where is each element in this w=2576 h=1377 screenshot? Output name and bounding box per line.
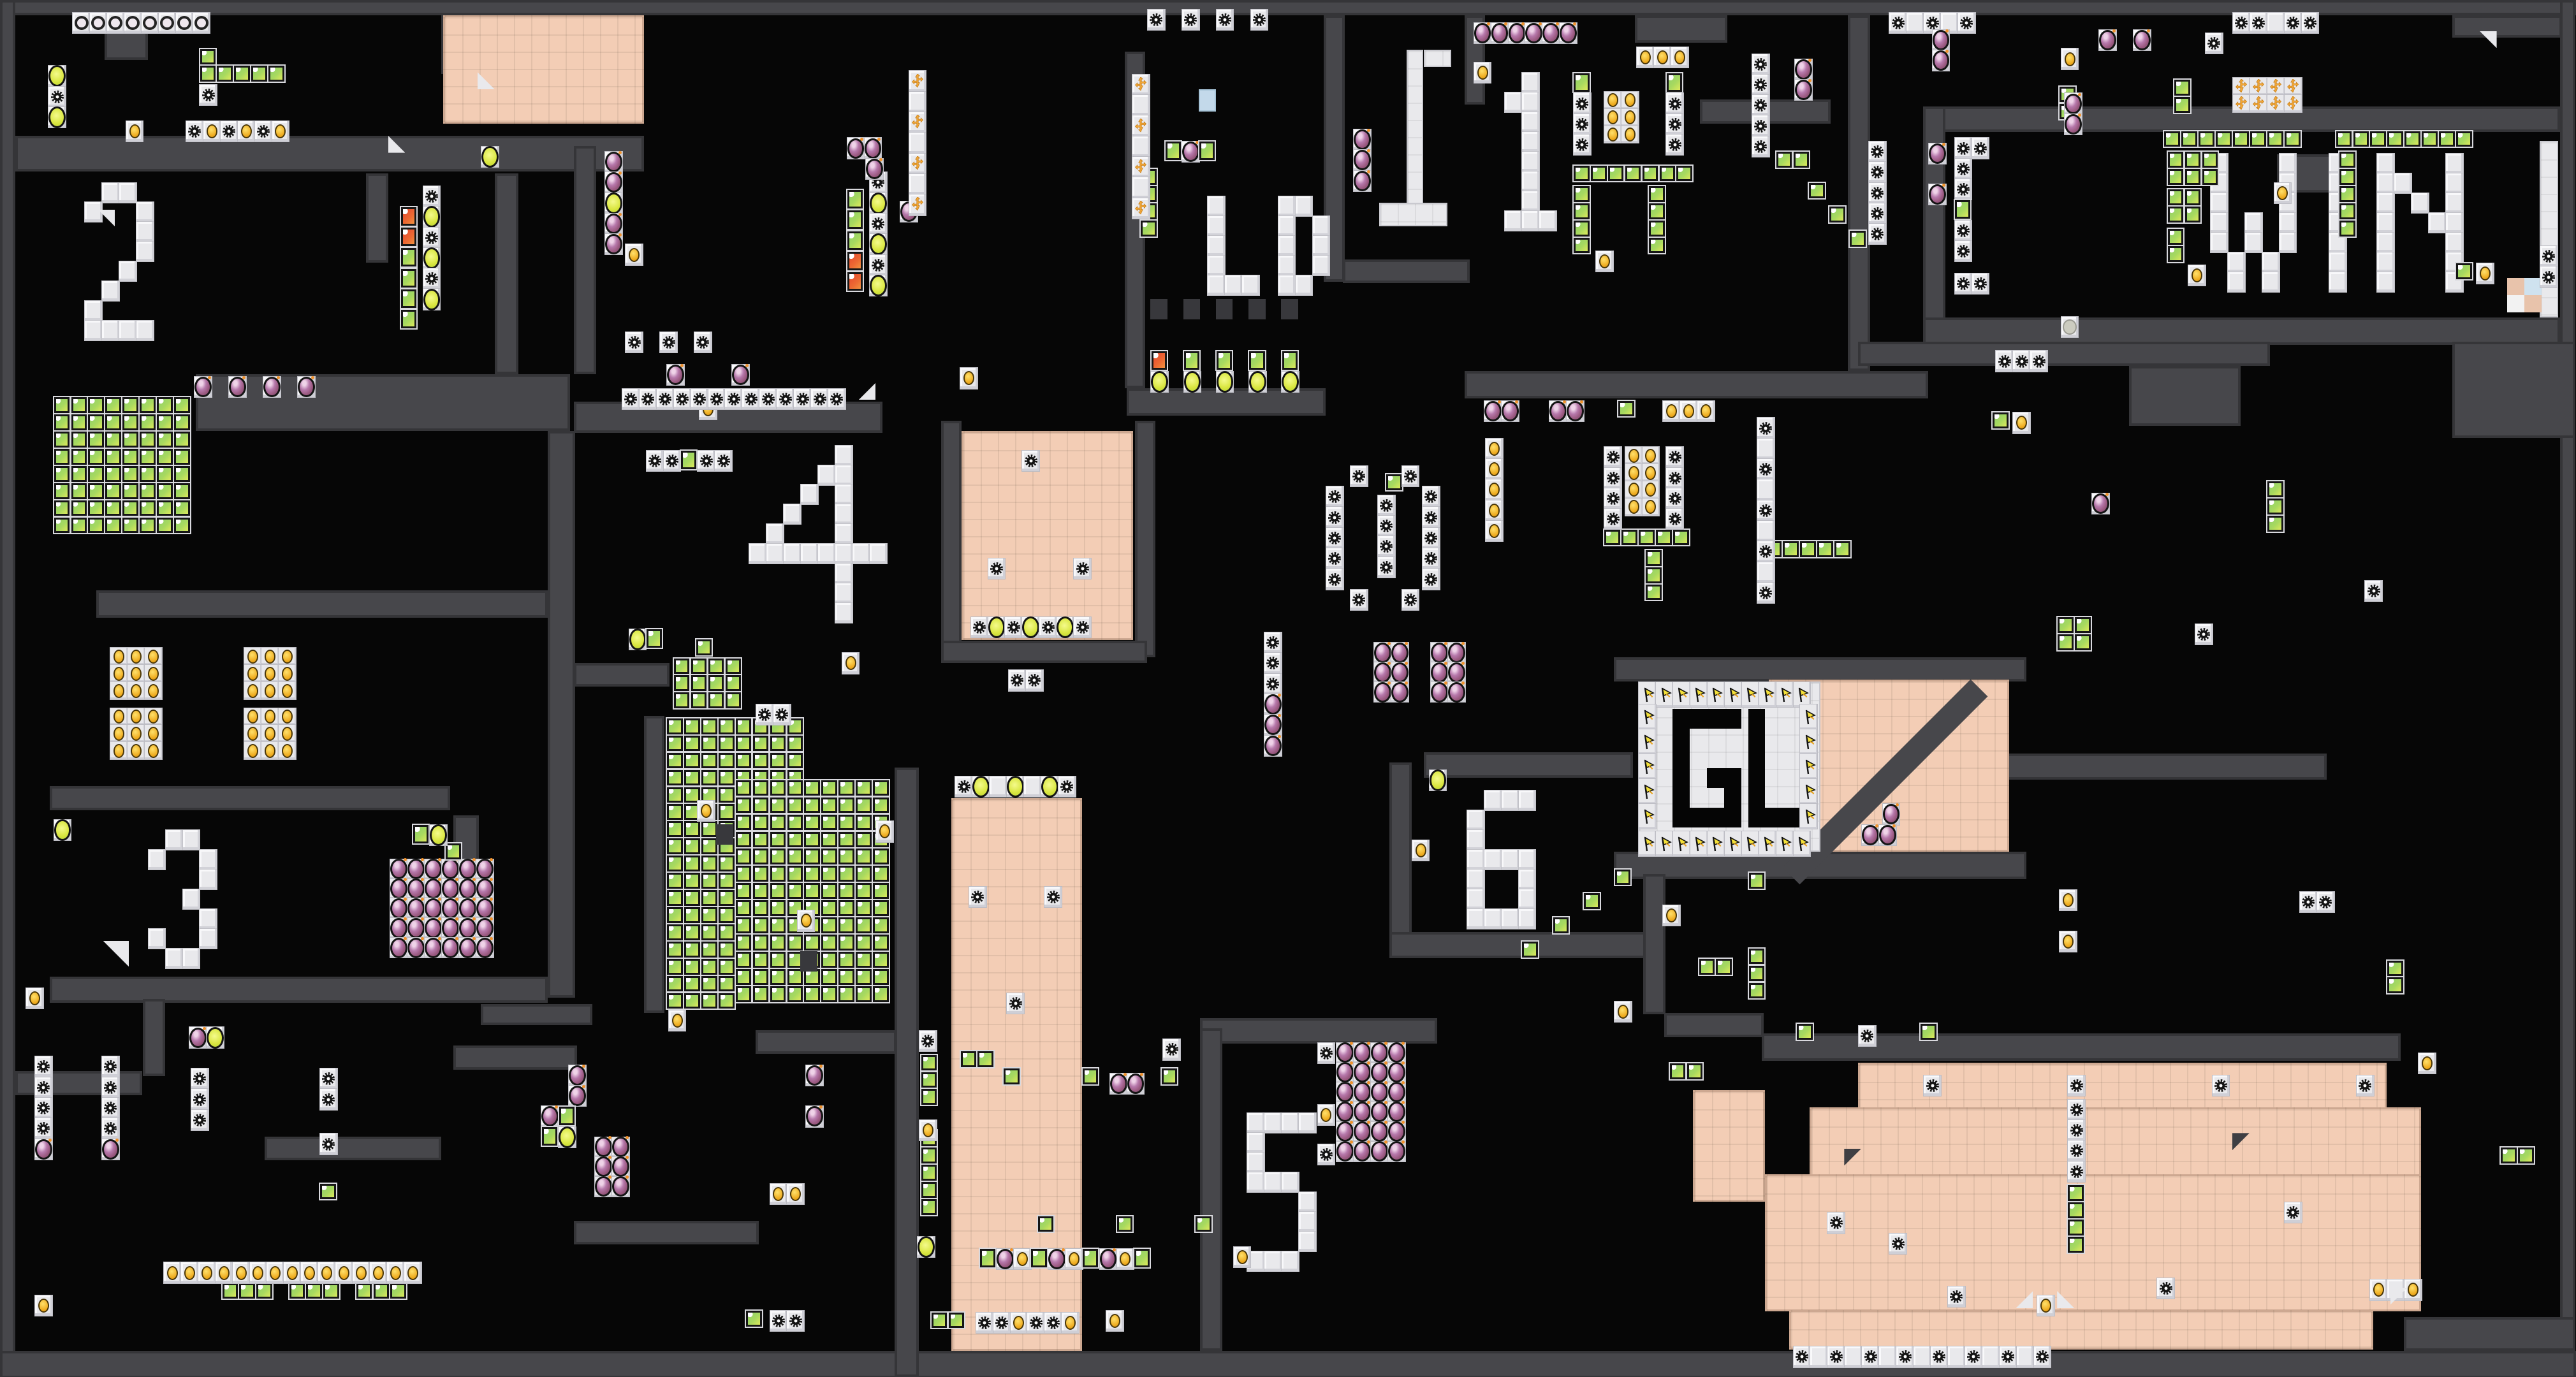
green-block <box>753 866 769 882</box>
saw-tile <box>1757 541 1775 562</box>
saw-icon <box>1891 16 1905 30</box>
green-block <box>54 500 70 516</box>
green-block <box>787 832 803 848</box>
glyph-L-tile <box>1207 235 1226 256</box>
coin-tile <box>237 120 256 142</box>
berry-icon <box>476 859 494 879</box>
berry-icon <box>1388 1141 1405 1162</box>
green-block <box>157 518 173 534</box>
coin-icon <box>773 1187 784 1201</box>
saw-icon <box>624 392 638 406</box>
green-block <box>306 1283 322 1299</box>
green-block <box>708 675 724 691</box>
peach-terrain <box>1693 1090 1765 1202</box>
glyph-4-tile <box>835 504 853 525</box>
green-block <box>753 969 769 985</box>
coin-icon <box>1013 1316 1024 1330</box>
big-coin-icon <box>870 233 887 255</box>
green-block <box>200 49 216 65</box>
green-block <box>804 780 820 796</box>
bigcoin-tile <box>869 193 888 214</box>
coin-icon <box>247 744 258 758</box>
glyph-N-tile <box>2376 193 2395 214</box>
saw-icon <box>103 1081 117 1095</box>
berry-icon <box>459 918 476 938</box>
green-block <box>1141 221 1157 237</box>
green-block <box>667 736 683 752</box>
coin-tile <box>842 652 860 674</box>
green-block <box>667 942 683 958</box>
berry-tile <box>458 937 477 958</box>
flag-tile <box>1638 754 1657 780</box>
saw-tile <box>1889 1233 1907 1255</box>
block-green <box>413 825 428 843</box>
berry-icon <box>390 898 407 919</box>
coin-tile <box>244 708 262 726</box>
berry-tile <box>390 917 408 938</box>
berry-tile <box>458 878 477 900</box>
saw-icon <box>1668 450 1682 464</box>
glyph-D-tile <box>1278 255 1296 276</box>
saw-tile <box>1326 486 1344 507</box>
glyph-N-tile <box>2445 173 2464 194</box>
saw-icon <box>1183 13 1197 27</box>
green-block <box>1687 1063 1703 1079</box>
berry-icon <box>2133 30 2151 50</box>
flag-tile <box>1793 831 1811 857</box>
block-green <box>1667 73 1682 92</box>
berry-icon <box>1264 736 1282 756</box>
berry-icon <box>806 1106 823 1126</box>
saw-tile <box>2030 350 2048 372</box>
saw-tile <box>1025 669 1044 691</box>
arrow-tile <box>1132 74 1150 96</box>
green-block <box>684 718 700 734</box>
block-red <box>1152 351 1167 370</box>
saw-icon <box>1870 165 1884 179</box>
berry-tile <box>476 878 494 900</box>
berry-tile <box>1928 143 1947 164</box>
wall-segment <box>481 1004 592 1024</box>
saw-icon <box>1575 138 1589 152</box>
saw-icon <box>1668 492 1682 506</box>
berry-icon <box>407 878 425 899</box>
saw-icon <box>871 217 885 231</box>
saw-icon <box>36 1121 50 1135</box>
wall-segment <box>50 786 450 810</box>
green-block <box>804 883 820 899</box>
berry-icon <box>1502 401 1519 421</box>
saw-tile <box>955 776 973 798</box>
coin-icon <box>148 684 159 698</box>
berry-tile <box>441 859 460 880</box>
coin-icon <box>131 667 142 681</box>
green-block <box>1817 541 1833 557</box>
berry-icon <box>1374 643 1391 663</box>
saw-tile <box>2284 1202 2302 1223</box>
coin-icon <box>2192 268 2202 282</box>
coin-tile <box>144 708 163 726</box>
saw-tile <box>1350 465 1368 487</box>
green-block <box>1386 474 1402 490</box>
green-block <box>736 969 752 985</box>
green-block <box>174 449 190 465</box>
green-block <box>140 518 156 534</box>
saw-tile <box>2356 1075 2375 1096</box>
saw-tile <box>694 331 712 353</box>
green-block <box>753 883 769 899</box>
coin-tile <box>203 120 221 142</box>
berry-icon <box>1431 662 1448 683</box>
green-block <box>961 1051 977 1067</box>
berry-tile <box>1387 1141 1406 1162</box>
saw-icon <box>1668 117 1682 131</box>
saw-tile <box>663 450 682 472</box>
big-coin-icon <box>481 146 499 168</box>
saw-tile <box>773 704 791 725</box>
coin-icon <box>275 124 286 138</box>
glyph-D-tile <box>1278 275 1296 296</box>
coin-tile <box>2012 412 2031 433</box>
berry-icon <box>541 1106 559 1126</box>
green-block <box>1794 152 1810 168</box>
glyph-2-tile <box>119 320 137 341</box>
berry-icon <box>1542 23 1560 43</box>
green-block <box>2058 617 2074 633</box>
coin-icon <box>2480 266 2491 280</box>
glyph-2-tile <box>119 182 137 203</box>
coin-tile <box>278 708 296 726</box>
berry-icon <box>1391 643 1409 663</box>
green-block <box>726 659 742 674</box>
bigcoin-tile <box>1041 776 1059 798</box>
arrow-cross-icon <box>910 156 925 171</box>
glyph-L-tile <box>1748 729 1766 748</box>
berry-icon <box>1883 804 1900 824</box>
berry-tile <box>1373 642 1392 663</box>
berry-tile <box>407 937 425 958</box>
green-block <box>719 718 735 734</box>
slope-wedge <box>2480 31 2497 48</box>
saw-icon <box>1252 13 1266 27</box>
berry-tile <box>1336 1042 1354 1063</box>
saw-icon <box>1007 620 1021 634</box>
green-block <box>787 798 803 813</box>
berry-tile <box>2064 113 2082 135</box>
coin-tile <box>1621 108 1639 127</box>
big-coin-icon <box>972 776 990 798</box>
green-block <box>821 986 837 1002</box>
coin-tile <box>369 1262 388 1283</box>
berry-tile <box>666 364 685 386</box>
flag-tile <box>1776 681 1794 708</box>
glyph-D-tile <box>1278 215 1296 237</box>
ring-tile <box>193 12 211 34</box>
green-block <box>753 753 769 769</box>
wall-segment <box>1858 342 2270 366</box>
glyph-6-tile <box>1484 908 1502 929</box>
saw-icon <box>1328 572 1342 586</box>
green-block <box>1800 541 1816 557</box>
saw-tile <box>646 450 664 472</box>
green-block <box>1749 949 1765 965</box>
berry-icon <box>1354 150 1371 170</box>
green-block <box>701 718 717 734</box>
berry-tile <box>1525 22 1543 44</box>
saw-tile <box>1665 113 1684 135</box>
berry-tile <box>424 859 443 880</box>
berry-icon <box>459 938 476 958</box>
green-block <box>787 736 803 752</box>
green-block <box>753 900 769 916</box>
glyph-5-tile <box>1247 1132 1265 1153</box>
green-block <box>838 780 854 796</box>
green-block <box>838 849 854 864</box>
saw-icon <box>641 392 655 406</box>
flag-tile <box>1707 681 1725 708</box>
green-block <box>1117 1216 1133 1232</box>
saw-icon <box>699 454 714 468</box>
glyph-6-tile <box>1501 849 1519 870</box>
green-block <box>719 736 735 752</box>
glyph-5-tile <box>1264 1112 1282 1133</box>
coin-icon <box>672 1014 683 1028</box>
saw-tile <box>2033 1346 2052 1367</box>
coin-icon <box>1628 483 1639 497</box>
block-green <box>1955 200 1970 219</box>
wall-segment <box>50 977 548 1002</box>
flag-tile <box>1759 681 1777 708</box>
berry-tile <box>1447 662 1466 683</box>
green-block <box>1670 1063 1686 1079</box>
saw-tile <box>2364 580 2383 602</box>
green-block <box>770 917 786 933</box>
glyph-D-tile <box>1312 235 1331 256</box>
saw-icon <box>779 392 793 406</box>
coin-tile <box>318 1262 336 1283</box>
green-block <box>921 1182 937 1198</box>
arrow-cross-icon <box>910 197 925 212</box>
glyph-G-tile <box>1707 808 1724 827</box>
saw-tile <box>319 1088 338 1110</box>
glyph-1-tile <box>1504 210 1523 231</box>
green-block <box>1604 530 1620 546</box>
coin-tile <box>110 724 128 743</box>
arrow-cross-icon <box>2234 96 2249 112</box>
bigcoin-tile <box>988 616 1006 638</box>
saw-tile <box>2212 1075 2230 1096</box>
coin-tile <box>244 681 262 700</box>
flag-icon <box>1640 733 1655 751</box>
berry-tile <box>568 1065 587 1086</box>
flag-tile <box>1638 704 1657 730</box>
flag-tile <box>1638 803 1657 829</box>
berry-tile <box>458 859 477 880</box>
berry-icon <box>102 1139 119 1160</box>
green-block <box>736 780 752 796</box>
saw-tile <box>1021 450 1040 472</box>
green-block <box>174 483 190 499</box>
saw-tile <box>1073 558 1092 579</box>
big-coin-icon <box>48 65 66 87</box>
coin-icon <box>1416 843 1426 857</box>
coin-tile <box>126 120 144 142</box>
green-block <box>140 397 156 413</box>
green-block <box>838 986 854 1002</box>
green-block <box>2164 131 2180 147</box>
flag-icon <box>1691 686 1706 704</box>
coin-tile <box>244 647 262 666</box>
glyph-D-tile <box>1278 235 1296 256</box>
saw-tile <box>1858 1025 1877 1047</box>
coin-icon <box>963 371 974 385</box>
arrow-tile <box>909 194 927 215</box>
coin-icon <box>1674 50 1685 64</box>
saw-tile <box>1757 582 1775 604</box>
green-block <box>667 753 683 769</box>
green-block <box>701 770 717 786</box>
green-block <box>719 873 735 889</box>
big-coin-icon <box>1430 769 1447 791</box>
berry-tile <box>1336 1102 1354 1123</box>
berry-icon <box>390 918 407 938</box>
berry-tile <box>1566 400 1584 422</box>
saw-icon <box>696 335 710 349</box>
glyph-5-tile <box>1247 1172 1265 1193</box>
big-coin-icon <box>423 289 441 310</box>
green-block <box>708 659 724 674</box>
green-block <box>1646 567 1662 583</box>
berry-icon <box>1929 184 1946 205</box>
saw-tile <box>869 254 888 276</box>
green-block <box>691 692 707 708</box>
saw-icon <box>36 1060 50 1074</box>
block-green <box>847 210 863 229</box>
green-block <box>71 414 87 430</box>
saw-tile <box>708 388 726 410</box>
wall-segment <box>1465 371 1928 398</box>
glyph-3-tile <box>165 948 184 969</box>
green-block <box>921 1055 937 1071</box>
green-block <box>157 483 173 499</box>
saw-icon <box>1753 78 1767 92</box>
flag-tile <box>1638 831 1657 857</box>
saw-icon <box>813 392 827 406</box>
glyph-2-tile <box>84 300 103 321</box>
coin-icon <box>1645 466 1656 480</box>
green-block <box>701 821 717 837</box>
coin-tile <box>144 724 163 743</box>
coin-icon <box>1701 404 1711 418</box>
arrow-tile <box>2267 94 2285 113</box>
saw-icon <box>1024 454 1038 468</box>
berry-tile <box>611 1137 630 1158</box>
green-block <box>701 736 717 752</box>
green-block <box>2501 1147 2517 1163</box>
saw-tile <box>2316 891 2335 913</box>
green-block <box>667 804 683 820</box>
saw-icon <box>1829 1350 1843 1364</box>
berry-tile <box>1370 1042 1389 1063</box>
green-block <box>2168 152 2184 168</box>
green-block <box>2068 1220 2084 1235</box>
coin-icon <box>282 744 293 758</box>
green-block <box>753 935 769 951</box>
coin-tile <box>180 1262 199 1283</box>
green-block <box>2370 131 2386 147</box>
flag-icon <box>1725 835 1741 853</box>
green-block <box>1625 166 1641 182</box>
glyph-3-tile <box>199 928 217 949</box>
green-block <box>2339 186 2355 202</box>
coin-tile <box>1642 498 1660 516</box>
saw-tile <box>1861 1346 1880 1367</box>
saw-icon <box>1041 620 1055 634</box>
green-block <box>234 66 250 82</box>
green-block <box>746 1311 762 1327</box>
green-block <box>770 815 786 831</box>
green-block <box>684 873 700 889</box>
block-green <box>647 629 662 648</box>
green-block <box>684 907 700 923</box>
flag-icon <box>1743 686 1758 704</box>
saw-tile <box>1422 506 1440 528</box>
green-block <box>223 1283 238 1299</box>
saw-tile <box>2540 245 2558 267</box>
coin-icon <box>1625 93 1636 107</box>
saw-tile <box>319 1133 338 1155</box>
wall-segment <box>2404 1317 2575 1351</box>
green-block <box>1656 530 1672 546</box>
coin-icon <box>304 1266 315 1280</box>
berry-icon <box>2065 114 2082 135</box>
glyph-3-tile <box>199 908 217 929</box>
berry-tile <box>390 937 408 958</box>
saw-tile <box>319 1068 338 1089</box>
green-block <box>770 849 786 864</box>
green-block <box>88 397 104 413</box>
platform-tile <box>1982 1346 2000 1367</box>
coin-icon <box>1640 50 1651 64</box>
saw-icon <box>1379 499 1393 513</box>
green-block <box>719 924 735 940</box>
arrow-tile <box>1132 115 1150 136</box>
berry-tile <box>1353 170 1372 192</box>
saw-tile <box>1868 182 1887 204</box>
green-block <box>684 993 700 1009</box>
green-block <box>1649 221 1665 237</box>
green-block <box>1038 1216 1054 1232</box>
saw-icon <box>1046 1316 1060 1330</box>
green-block <box>2058 634 2074 650</box>
green-block <box>856 952 872 968</box>
glyph-G-tile <box>1672 788 1690 808</box>
green-block <box>71 397 87 413</box>
berry-tile <box>805 1105 824 1127</box>
green-block <box>821 900 837 916</box>
berry-icon <box>1336 1042 1354 1063</box>
green-block <box>719 753 735 769</box>
wall-segment <box>574 146 596 374</box>
green-block <box>753 780 769 796</box>
berry-icon <box>806 1065 823 1086</box>
bigcoin-tile <box>558 1126 576 1148</box>
green-block <box>1660 166 1676 182</box>
bigcoin-tile <box>54 819 72 841</box>
coin-tile <box>1642 481 1660 499</box>
berry-icon <box>459 859 476 879</box>
big-coin-icon <box>1151 371 1168 393</box>
